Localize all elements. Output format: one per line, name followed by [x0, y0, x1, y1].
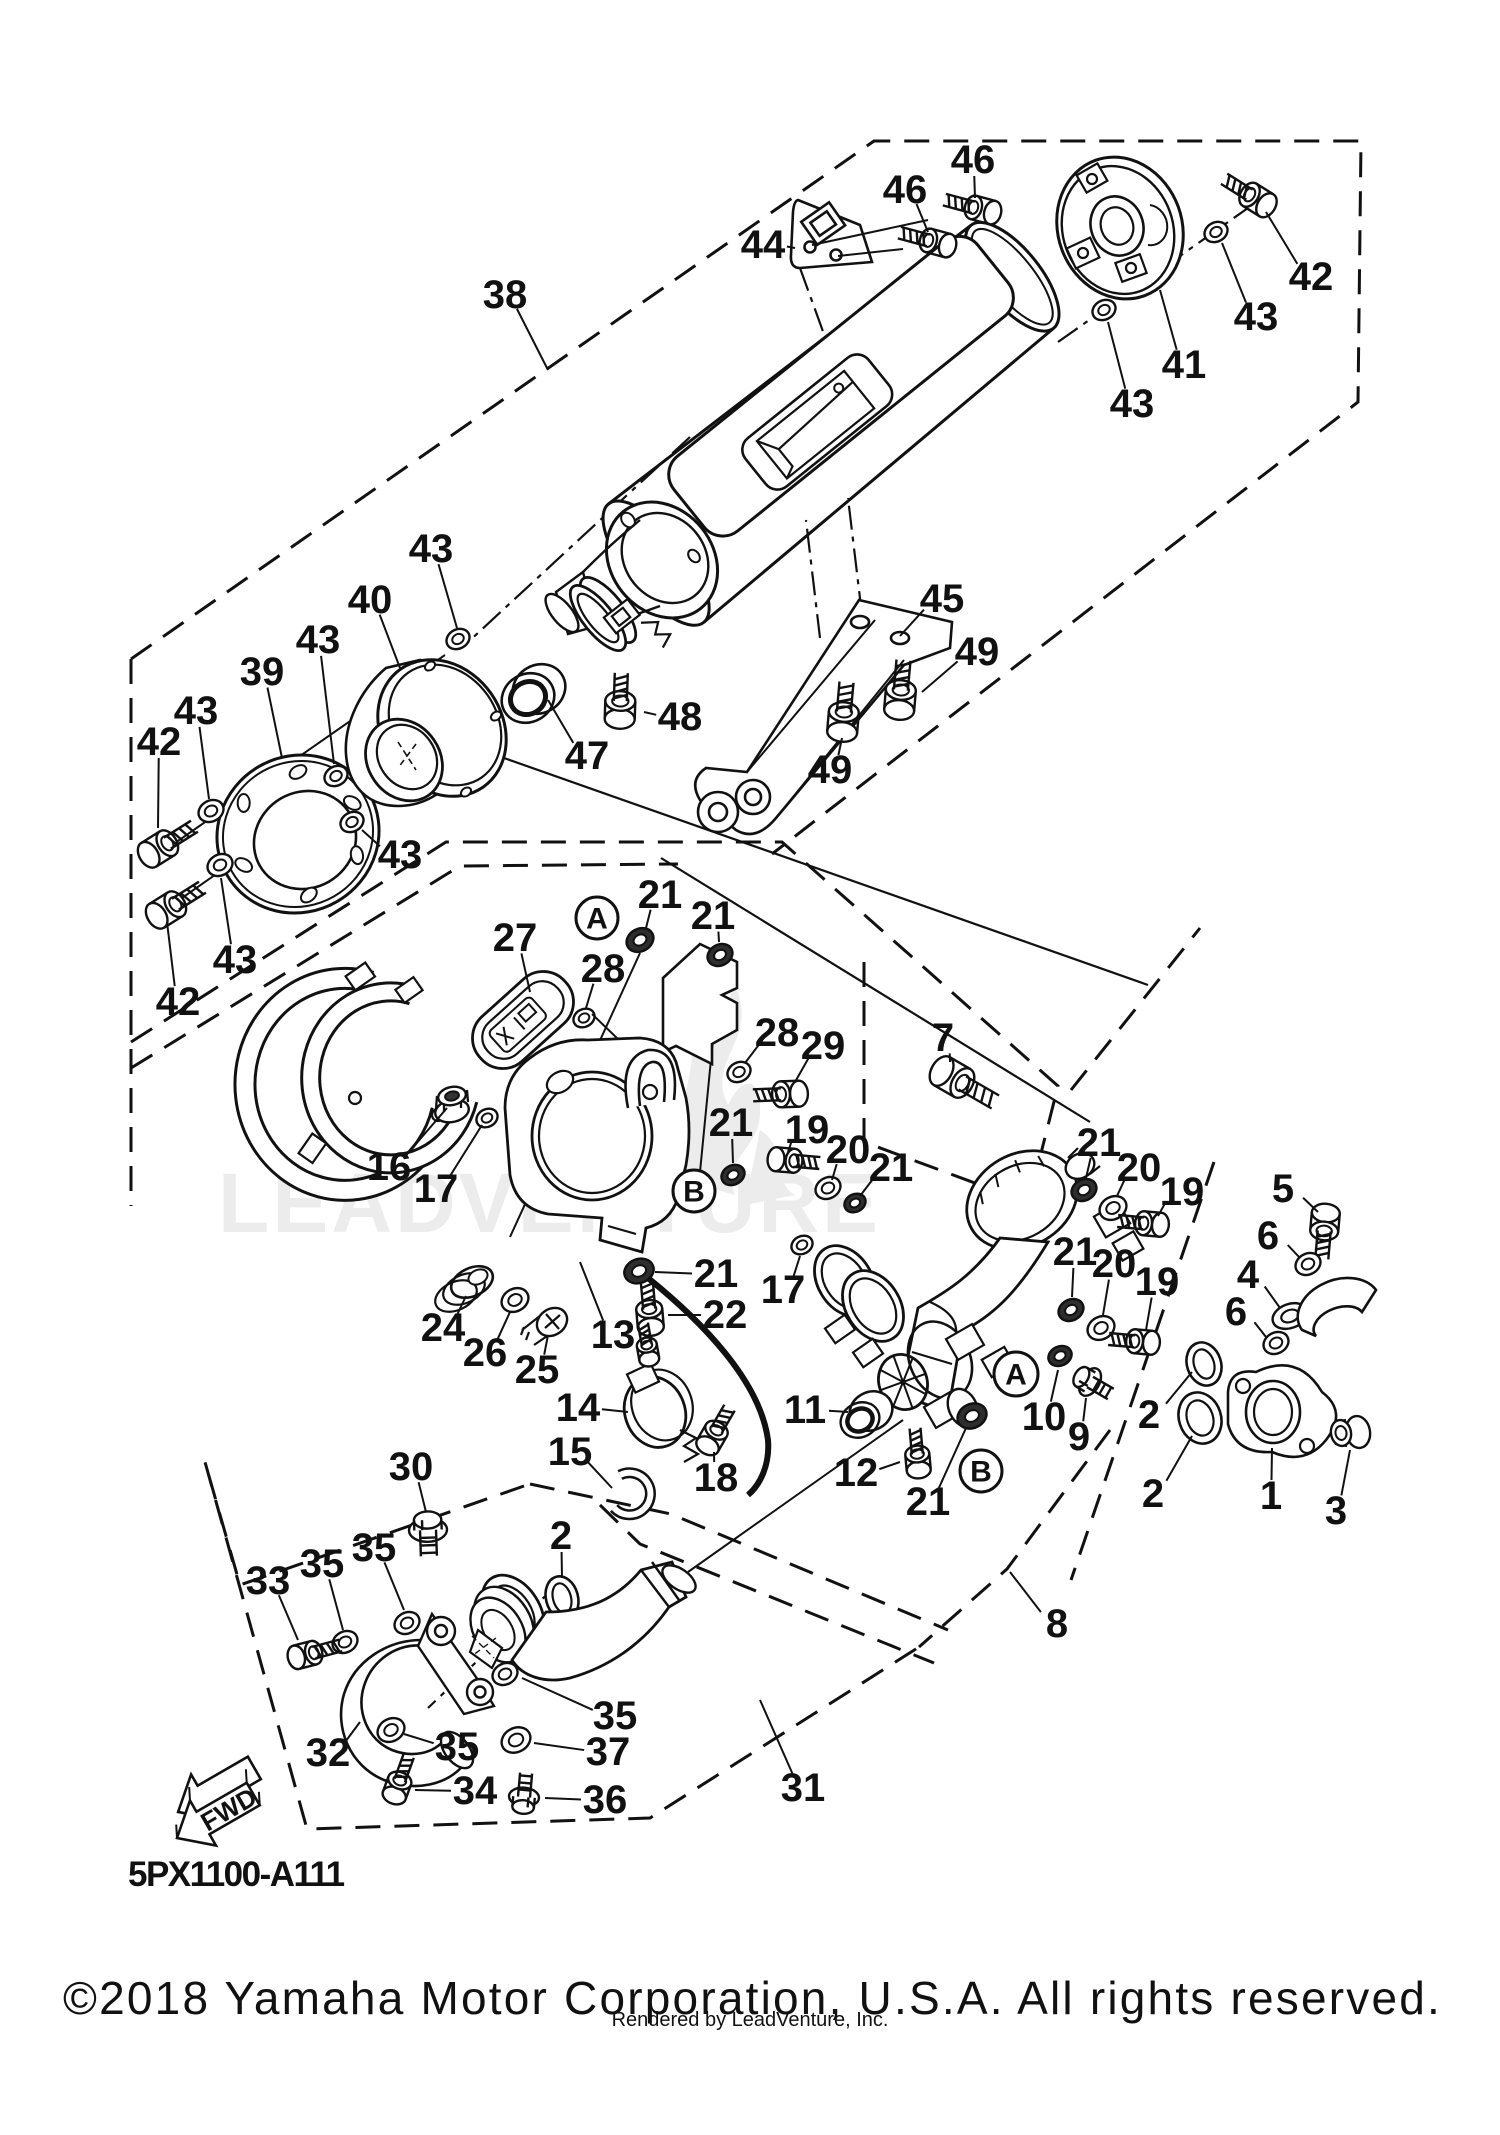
svg-text:21: 21: [691, 894, 736, 938]
svg-text:49: 49: [808, 748, 853, 792]
svg-text:26: 26: [463, 1331, 508, 1375]
svg-text:27: 27: [493, 916, 538, 960]
svg-text:36: 36: [583, 1778, 628, 1822]
svg-text:6: 6: [1225, 1290, 1247, 1334]
svg-text:25: 25: [515, 1348, 560, 1392]
svg-text:46: 46: [951, 138, 996, 182]
svg-text:19: 19: [1135, 1260, 1180, 1304]
svg-text:8: 8: [1046, 1602, 1068, 1646]
svg-text:40: 40: [348, 578, 393, 622]
svg-text:28: 28: [755, 1011, 800, 1055]
svg-text:19: 19: [785, 1108, 830, 1152]
svg-text:38: 38: [483, 273, 528, 317]
svg-text:16: 16: [367, 1145, 412, 1189]
svg-text:9: 9: [1068, 1415, 1090, 1459]
svg-text:2: 2: [550, 1514, 572, 1558]
svg-text:48: 48: [658, 695, 703, 739]
svg-text:46: 46: [883, 168, 928, 212]
svg-text:B: B: [970, 1456, 992, 1489]
svg-text:21: 21: [1053, 1230, 1098, 1274]
svg-text:15: 15: [548, 1430, 593, 1474]
svg-text:20: 20: [1092, 1242, 1137, 1286]
svg-text:33: 33: [246, 1559, 291, 1603]
svg-text:12: 12: [834, 1451, 879, 1495]
svg-text:43: 43: [296, 618, 341, 662]
svg-text:6: 6: [1257, 1214, 1279, 1258]
svg-text:20: 20: [826, 1128, 871, 1172]
svg-text:21: 21: [869, 1146, 914, 1190]
svg-text:32: 32: [306, 1731, 351, 1775]
svg-text:7: 7: [932, 1016, 954, 1060]
svg-text:2: 2: [1138, 1393, 1160, 1437]
svg-text:10: 10: [1022, 1395, 1067, 1439]
svg-text:21: 21: [638, 873, 683, 917]
svg-text:39: 39: [240, 650, 285, 694]
svg-text:43: 43: [1110, 382, 1155, 426]
svg-text:35: 35: [352, 1526, 397, 1570]
svg-text:24: 24: [421, 1306, 466, 1350]
svg-text:41: 41: [1162, 343, 1207, 387]
svg-text:14: 14: [556, 1386, 601, 1430]
svg-text:42: 42: [156, 980, 201, 1024]
svg-text:43: 43: [213, 938, 258, 982]
svg-text:18: 18: [694, 1456, 739, 1500]
svg-text:21: 21: [1077, 1121, 1122, 1165]
svg-text:19: 19: [1160, 1170, 1205, 1214]
svg-text:42: 42: [1289, 255, 1334, 299]
svg-text:2: 2: [1142, 1472, 1164, 1516]
svg-text:29: 29: [801, 1024, 846, 1068]
svg-text:37: 37: [586, 1730, 631, 1774]
svg-text:44: 44: [741, 223, 786, 267]
svg-text:35: 35: [300, 1542, 345, 1586]
svg-text:21: 21: [709, 1101, 754, 1145]
svg-text:42: 42: [137, 720, 182, 764]
svg-text:49: 49: [955, 630, 1000, 674]
svg-text:Rendered by LeadVenture, Inc.: Rendered by LeadVenture, Inc.: [612, 2009, 889, 2031]
svg-text:34: 34: [453, 1769, 498, 1813]
svg-text:43: 43: [378, 833, 423, 877]
svg-text:1: 1: [1260, 1474, 1282, 1518]
svg-text:3: 3: [1325, 1489, 1347, 1533]
svg-text:35: 35: [435, 1725, 480, 1769]
svg-text:21: 21: [694, 1252, 739, 1296]
svg-text:30: 30: [389, 1445, 434, 1489]
svg-text:A: A: [586, 903, 608, 936]
svg-text:22: 22: [703, 1293, 748, 1337]
svg-text:17: 17: [414, 1167, 459, 1211]
svg-text:21: 21: [906, 1480, 951, 1524]
svg-text:45: 45: [920, 577, 965, 621]
svg-text:A: A: [1005, 1359, 1027, 1392]
svg-text:5: 5: [1272, 1167, 1294, 1211]
svg-text:47: 47: [565, 734, 610, 778]
svg-text:20: 20: [1117, 1146, 1162, 1190]
svg-text:43: 43: [409, 527, 454, 571]
svg-text:17: 17: [761, 1268, 806, 1312]
svg-text:31: 31: [781, 1766, 826, 1810]
svg-text:5PX1100-A111: 5PX1100-A111: [128, 1855, 345, 1894]
svg-text:28: 28: [581, 947, 626, 991]
svg-text:13: 13: [591, 1313, 636, 1357]
svg-text:11: 11: [784, 1388, 826, 1432]
svg-text:43: 43: [1234, 295, 1279, 339]
svg-text:B: B: [683, 1176, 705, 1209]
